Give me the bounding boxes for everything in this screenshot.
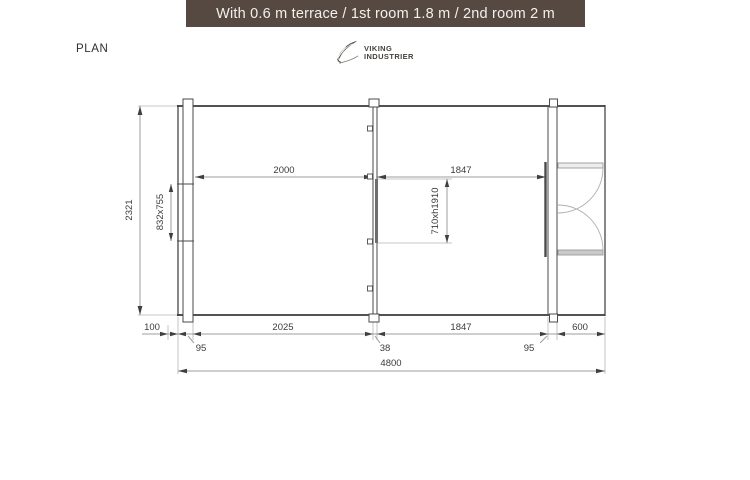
hinge-mark (368, 239, 373, 244)
dim-room2-width: 1847 (450, 322, 471, 333)
dim-overall-depth: 2321 (124, 199, 135, 220)
building-outline (177, 105, 605, 316)
left-wall (177, 99, 194, 322)
door-swing-arc-bottom (558, 205, 603, 250)
page: With 0.6 m terrace / 1st room 1.8 m / 2n… (0, 0, 750, 480)
dim-window-size: 832x755 (155, 194, 166, 230)
dim-door-size: 710xh1910 (430, 187, 441, 234)
middle-wall (368, 99, 380, 322)
dim-right-wall-thickness: 95 (524, 343, 535, 354)
hinge-mark (368, 174, 373, 179)
dim-room1-interior-width: 2000 (273, 165, 294, 176)
terrace-double-door (558, 163, 603, 255)
door-leaf-bottom (558, 250, 603, 255)
dim-room2-interior-width: 1847 (450, 165, 471, 176)
floor-plan-drawing: 2000 1847 832x755 710xh1910 2321 100 202… (0, 0, 750, 480)
hinge-mark (368, 286, 373, 291)
hinge-mark (368, 126, 373, 131)
dim-middle-wall-thickness: 38 (380, 343, 391, 354)
dim-terrace-depth: 600 (572, 322, 588, 333)
door-leaf-top (558, 163, 603, 168)
right-wall (546, 99, 558, 322)
dim-left-wall-thickness: 95 (196, 343, 207, 354)
dim-roof-overhang: 100 (144, 322, 160, 333)
dim-room1-width: 2025 (272, 322, 293, 333)
dim-overall-width: 4800 (380, 358, 401, 369)
door-swing-arc-top (558, 168, 603, 213)
